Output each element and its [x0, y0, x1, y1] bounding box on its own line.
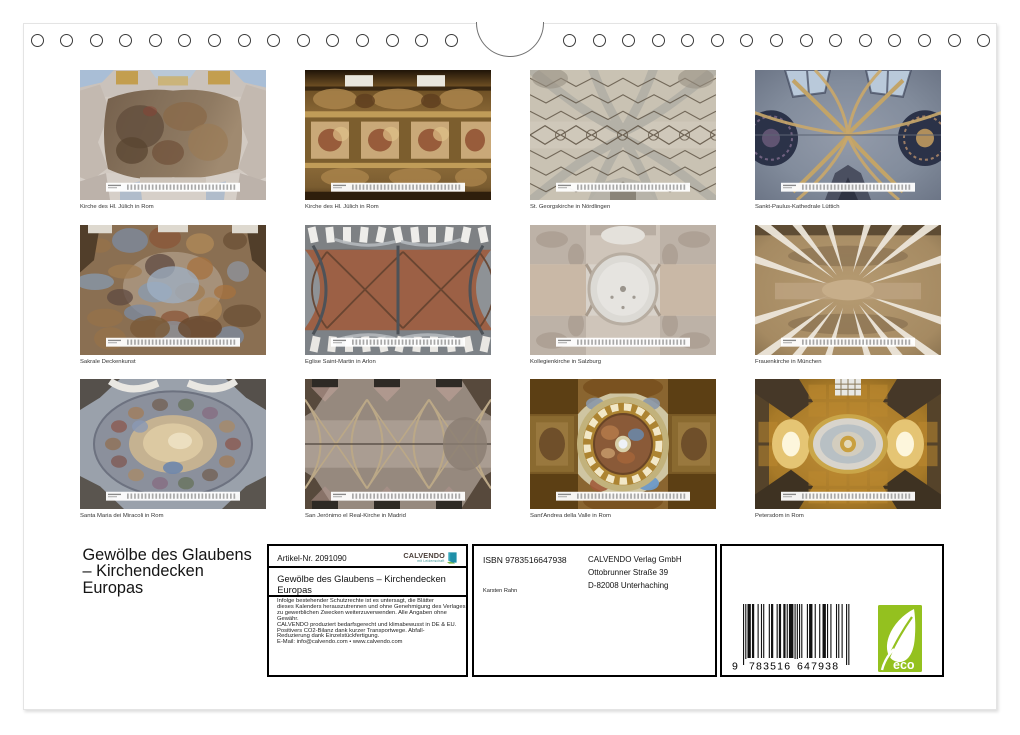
svg-text:783516: 783516: [749, 661, 791, 671]
svg-text:647938: 647938: [797, 661, 839, 671]
svg-text:eco: eco: [893, 658, 915, 672]
svg-text:9: 9: [732, 661, 738, 671]
